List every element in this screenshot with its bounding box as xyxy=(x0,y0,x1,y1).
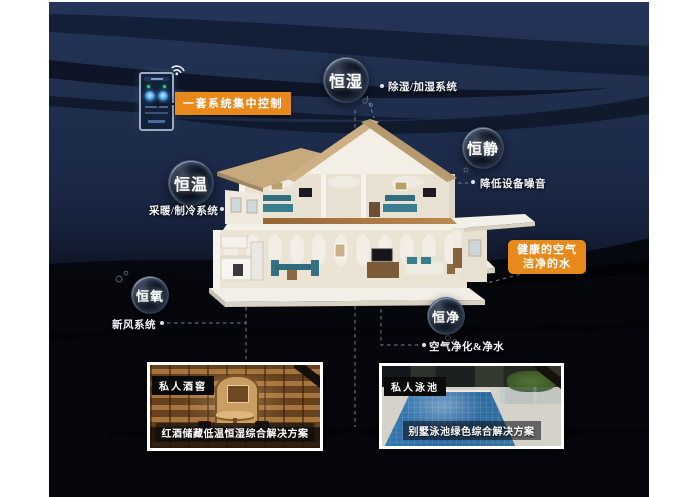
bubble-temperature: 恒温 xyxy=(168,160,214,206)
dial-knob[interactable] xyxy=(158,91,168,101)
central-control-label: 一套系统集中控制 xyxy=(175,92,291,115)
bubble-quiet-label: 恒静 xyxy=(467,138,499,159)
pool-caption: 别墅泳池绿色综合解决方案 xyxy=(403,421,541,440)
inset-wine-cellar: 私人酒窖 红酒储藏低温恒湿综合解决方案 xyxy=(147,362,323,451)
panel-row xyxy=(145,112,168,114)
status-led xyxy=(147,85,150,88)
wine-tag: 私人酒窖 xyxy=(152,376,214,395)
pool-photo: 私人泳池 别墅泳池绿色综合解决方案 xyxy=(382,366,561,446)
control-panel-header xyxy=(144,77,169,81)
corner-ribbon-icon xyxy=(294,365,320,391)
bubble-humidity: 恒湿 xyxy=(323,57,369,103)
wine-caption: 红酒储藏低温恒湿综合解决方案 xyxy=(156,423,315,442)
bubble-humidity-label: 恒湿 xyxy=(329,68,363,92)
status-led xyxy=(163,85,166,88)
corner-ribbon-icon xyxy=(535,366,561,392)
bubble-purity-label: 恒净 xyxy=(432,307,460,326)
bubble-purity: 恒净 xyxy=(427,297,465,335)
wine-cellar-photo: 私人酒窖 红酒储藏低温恒湿综合解决方案 xyxy=(150,365,320,448)
inset-pool: 私人泳池 别墅泳池绿色综合解决方案 xyxy=(379,363,564,449)
system-label-humidity: 除湿/加湿系统 xyxy=(388,79,457,94)
system-label-temperature: 采暖/制冷系统 xyxy=(149,203,218,218)
panel-row xyxy=(148,120,165,123)
diagram-stage: 一套系统集中控制 健康的空气 洁净的水 恒湿 恒静 恒温 恒氧 恒净 除湿/加湿… xyxy=(49,2,649,497)
system-label-purity: 空气净化&净水 xyxy=(429,339,504,354)
callout-line2: 洁净的水 xyxy=(512,257,582,271)
callout-line1: 健康的空气 xyxy=(512,243,582,257)
system-label-oxygen: 新风系统 xyxy=(112,317,156,332)
pool-tag: 私人泳池 xyxy=(384,377,446,396)
wine-table xyxy=(216,411,253,418)
bubble-quiet: 恒静 xyxy=(462,127,504,169)
callout-air-water: 健康的空气 洁净的水 xyxy=(508,240,586,274)
infographic-canvas: 一套系统集中控制 健康的空气 洁净的水 恒湿 恒静 恒温 恒氧 恒净 除湿/加湿… xyxy=(0,0,700,497)
bubble-oxygen: 恒氧 xyxy=(131,276,169,314)
bubble-oxygen-label: 恒氧 xyxy=(136,286,164,305)
system-label-quiet: 降低设备噪音 xyxy=(480,176,546,191)
bubble-temperature-label: 恒温 xyxy=(174,171,208,195)
